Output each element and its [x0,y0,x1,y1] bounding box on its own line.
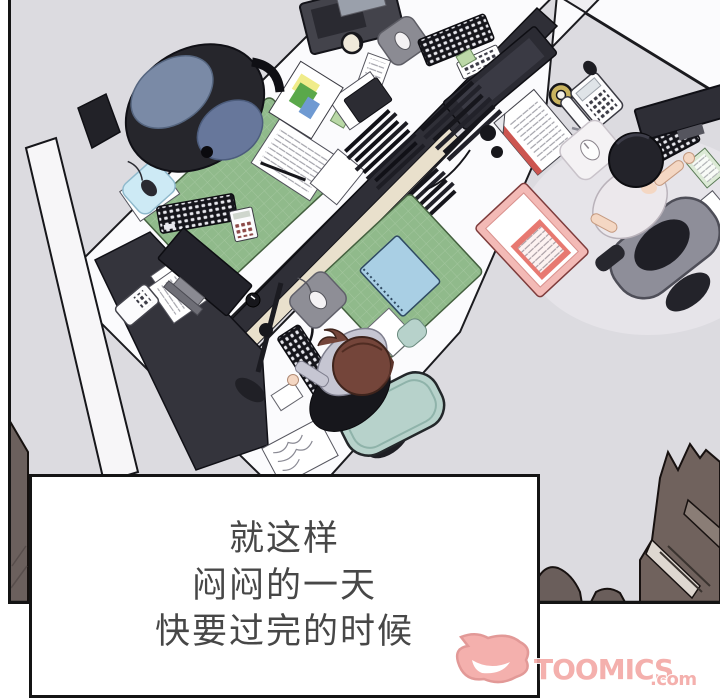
tape-dispenser [342,33,362,53]
hand [288,375,299,386]
watermark-suffix: .com [650,669,697,690]
caption-line-2: 闷闷的一天 [192,568,377,605]
lamp-base [491,146,503,158]
head-brown-hair [333,337,391,395]
toomics-logo-icon [457,634,528,682]
lamp-base [480,125,496,141]
caption-line-3: 快要过完的时候 [155,614,414,651]
caption-line-1: 就这样 [229,521,340,558]
toomics-watermark: TOOMICS .com [448,630,720,694]
webtoon-page: 就这样 闷闷的一天 快要过完的时候 TOOMICS .com [0,0,720,700]
timer-knob [246,293,260,307]
hand [684,153,695,164]
head-black-hair [609,133,663,187]
